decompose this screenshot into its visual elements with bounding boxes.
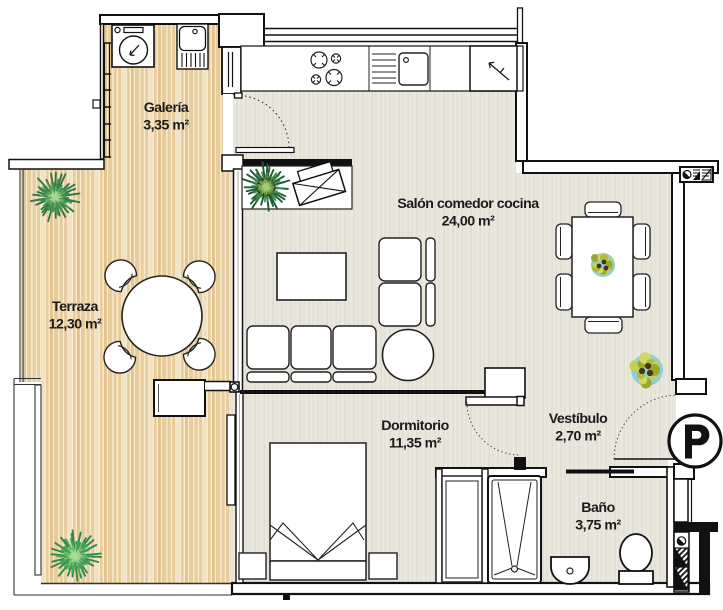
svg-text:12,30 m²: 12,30 m² bbox=[49, 317, 103, 333]
svg-text:2,70 m²: 2,70 m² bbox=[555, 429, 601, 445]
svg-text:Galería: Galería bbox=[144, 100, 189, 116]
svg-text:Baño: Baño bbox=[581, 500, 615, 516]
svg-text:3,75 m²: 3,75 m² bbox=[575, 518, 621, 534]
svg-text:11,35 m²: 11,35 m² bbox=[389, 436, 442, 452]
svg-text:24,00 m²: 24,00 m² bbox=[442, 214, 496, 230]
svg-text:Dormitorio: Dormitorio bbox=[381, 418, 449, 434]
svg-text:Vestíbulo: Vestíbulo bbox=[549, 411, 608, 427]
svg-text:Terraza: Terraza bbox=[52, 299, 99, 315]
svg-text:Salón comedor cocina: Salón comedor cocina bbox=[397, 196, 539, 212]
svg-text:3,35 m²: 3,35 m² bbox=[143, 118, 189, 134]
